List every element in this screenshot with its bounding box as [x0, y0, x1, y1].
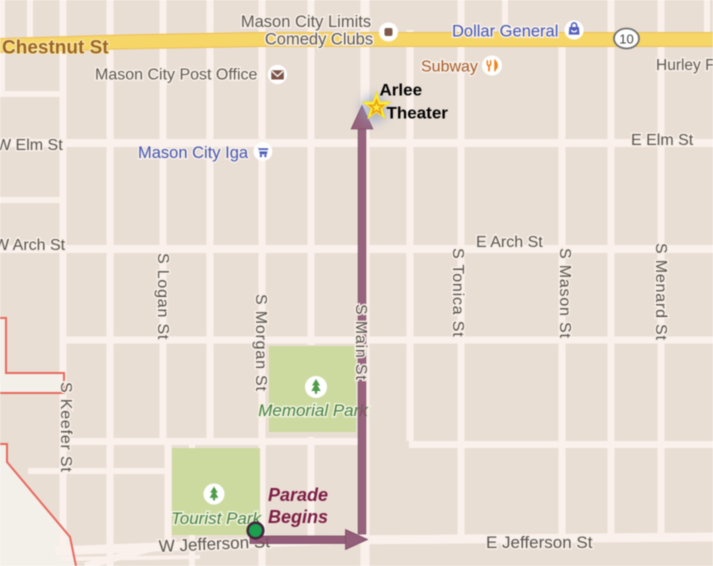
svg-text:Dollar General: Dollar General	[452, 23, 558, 41]
svg-text:S Logan St: S Logan St	[154, 253, 171, 340]
svg-text:S Mason St: S Mason St	[556, 248, 573, 339]
svg-text:Mason City Iga: Mason City Iga	[138, 144, 249, 162]
svg-text:Memorial Park: Memorial Park	[258, 401, 369, 420]
svg-text:W Arch St: W Arch St	[0, 237, 66, 254]
svg-text:E Arch St: E Arch St	[476, 234, 543, 251]
svg-text:S Morgan St: S Morgan St	[252, 294, 269, 392]
svg-text:S Main St: S Main St	[352, 304, 369, 381]
svg-text:S Tonica St: S Tonica St	[449, 248, 466, 337]
svg-text:E Elm St: E Elm St	[631, 132, 694, 149]
svg-text:10: 10	[619, 32, 633, 47]
svg-text:Begins: Begins	[268, 507, 328, 527]
svg-text:Arlee: Arlee	[380, 81, 423, 100]
svg-text:Parade: Parade	[268, 485, 328, 505]
svg-text:S Keefer St: S Keefer St	[57, 382, 74, 473]
svg-text:E Jefferson St: E Jefferson St	[486, 533, 593, 552]
svg-text:Mason City Post Office: Mason City Post Office	[95, 67, 258, 84]
svg-text:Hurley Fun: Hurley Fun	[656, 57, 713, 74]
svg-text:S Menard St: S Menard St	[652, 243, 669, 341]
svg-text:Subway: Subway	[421, 59, 478, 76]
svg-text:Theater: Theater	[387, 104, 449, 123]
svg-text:Chestnut St: Chestnut St	[2, 38, 109, 59]
svg-text:Comedy Clubs: Comedy Clubs	[265, 31, 373, 49]
svg-text:Mason City Limits: Mason City Limits	[241, 13, 371, 31]
svg-text:W Elm St: W Elm St	[0, 137, 63, 154]
